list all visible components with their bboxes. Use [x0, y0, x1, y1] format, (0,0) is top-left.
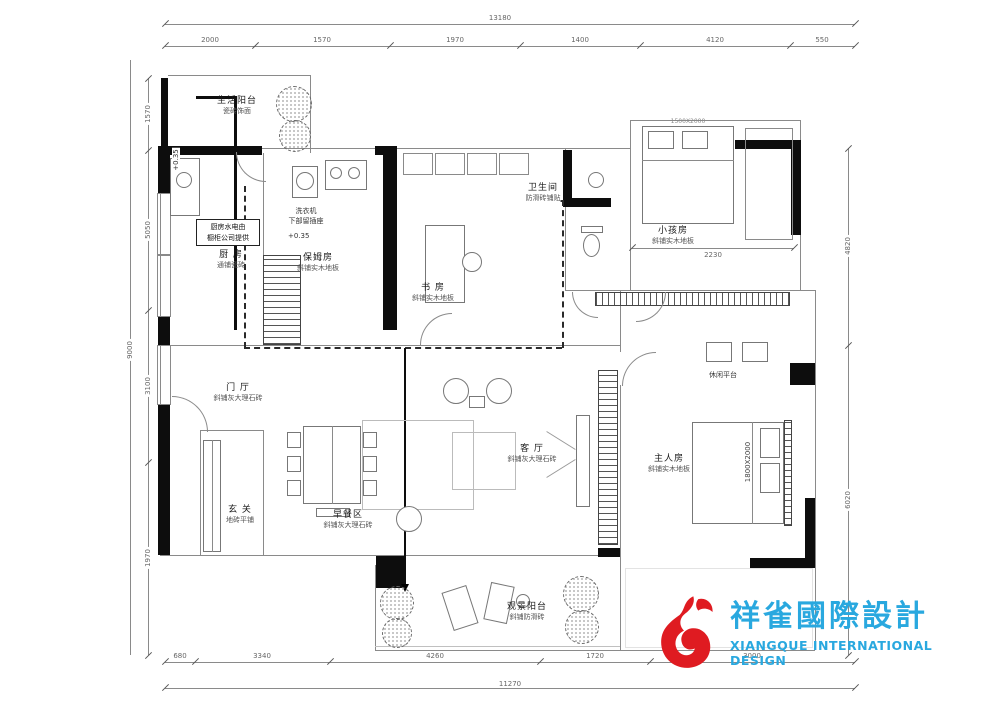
room-label-bath: 卫生间 防滑砖铺贴 — [526, 183, 561, 203]
room-finish: 斜铺实木地板 — [412, 294, 454, 302]
room-label-breakfast: 早餐区 斜铺灰大理石砖 — [324, 510, 373, 530]
partition-line — [160, 345, 620, 346]
tree — [276, 86, 312, 122]
sink-bowl — [176, 172, 192, 188]
chair — [363, 432, 377, 448]
chair — [363, 480, 377, 496]
master-bed-dim: 1800X2000 — [744, 440, 752, 484]
wall-solid — [598, 548, 620, 557]
note-line: 厨房水电由 — [200, 222, 256, 233]
tv-console — [576, 415, 590, 507]
chair — [287, 456, 301, 472]
room-name: 玄 关 — [226, 505, 254, 516]
dining-rug — [362, 420, 474, 510]
wall-line — [160, 555, 405, 556]
chair — [287, 432, 301, 448]
kitchen-note: 厨房水电由 橱柜公司提供 — [196, 219, 260, 246]
dim-top-5: 4120 — [704, 36, 726, 44]
room-label-living: 客 厅 斜铺灰大理石砖 — [508, 444, 557, 464]
kids-closet — [745, 128, 793, 240]
room-name: 书 房 — [412, 283, 454, 294]
room-finish: 斜铺灰大理石砖 — [324, 521, 373, 529]
round-table — [396, 506, 422, 532]
lounge-chair — [441, 585, 478, 631]
burner — [330, 167, 342, 179]
study-cabinet — [467, 153, 497, 175]
dresser — [706, 342, 732, 362]
dim-bottom-total: 11270 — [497, 680, 523, 688]
dresser — [742, 342, 768, 362]
kids-bed-dim: 1500X2000 — [669, 118, 708, 125]
basin — [588, 172, 604, 188]
tick — [791, 244, 798, 251]
study-cabinet — [435, 153, 465, 175]
room-finish: 地砖平铺 — [226, 516, 254, 524]
wall-line — [375, 650, 620, 651]
study-cabinet — [403, 153, 433, 175]
wardrobe-strip — [598, 370, 618, 545]
column-hatch — [157, 255, 171, 317]
room-label-maid: 保姆房 斜铺实木地板 — [297, 253, 339, 273]
toilet-tank — [581, 226, 603, 233]
wall-solid — [161, 78, 168, 150]
blanket-line — [642, 160, 734, 161]
dim-bottom-3: 4260 — [424, 652, 446, 660]
dim-left-4: 1970 — [144, 547, 152, 569]
dim-line-right — [848, 148, 849, 655]
railing-strip — [595, 292, 790, 306]
wall-solid — [383, 146, 397, 330]
wall-line — [620, 565, 621, 650]
dim-top-1: 2000 — [199, 36, 221, 44]
floor-plan-sheet: 13180 2000 1570 1970 1400 4120 550 9000 … — [0, 0, 1000, 716]
tree — [380, 586, 414, 620]
dim-line-bottom-total — [165, 688, 855, 689]
table-line — [332, 426, 333, 504]
wall-solid — [158, 155, 170, 193]
tick — [852, 20, 859, 27]
wall-solid — [563, 198, 611, 207]
tree — [563, 576, 599, 612]
dim-left-total: 9000 — [126, 339, 134, 361]
room-finish: 瓷砖饰面 — [217, 107, 257, 115]
partition-line — [200, 430, 201, 555]
level-marker: +0.35 — [288, 232, 309, 240]
wall-solid — [750, 558, 815, 568]
room-name: 卫生间 — [526, 183, 561, 194]
room-finish: 斜铺防滑砖 — [507, 613, 547, 621]
room-label-life-balcony: 生活阳台 瓷砖饰面 — [217, 96, 257, 116]
headboard — [784, 420, 792, 526]
wall-solid — [158, 405, 170, 555]
dim-top-3: 1970 — [444, 36, 466, 44]
room-label-kitchen: 厨 房 通铺瓷砖 — [217, 250, 245, 270]
wall-line — [630, 120, 800, 121]
wall-solid — [790, 363, 815, 385]
note-line: 洗衣机 — [289, 206, 324, 216]
room-label-hall: 门 厅 斜铺灰大理石砖 — [214, 383, 263, 403]
logo-chinese-text: 祥雀國際設計 — [730, 600, 928, 633]
armchair — [443, 378, 469, 404]
column-hatch — [157, 193, 171, 255]
logo-english-text: XIANGQUE INTERNATIONAL DESIGN — [730, 638, 938, 668]
room-name: 客 厅 — [508, 444, 557, 455]
door-arc — [622, 352, 656, 386]
wall-line — [405, 555, 620, 556]
dim-left-2: 5050 — [144, 219, 152, 241]
tree — [279, 120, 311, 152]
dim-line-top-total — [165, 24, 855, 25]
room-label-master: 主人房 斜铺实木地板 — [648, 454, 690, 474]
dim-bottom-2: 3340 — [251, 652, 273, 660]
room-name: 观景阳台 — [507, 602, 547, 613]
room-finish: 斜铺灰大理石砖 — [508, 455, 557, 463]
tick — [145, 652, 152, 659]
tree — [382, 618, 412, 648]
armchair — [486, 378, 512, 404]
chair — [287, 480, 301, 496]
wiring-dashed — [562, 200, 564, 348]
door-arc — [572, 292, 598, 318]
study-cabinet — [499, 153, 529, 175]
note-line: 下部留插座 — [289, 216, 324, 226]
wiring-dashed — [244, 347, 562, 349]
wall-line — [630, 120, 631, 148]
door-arc — [636, 292, 666, 322]
washer-note: 洗衣机 下部留插座 — [289, 206, 324, 226]
room-finish: 斜铺实木地板 — [652, 237, 694, 245]
cabinet-line — [212, 440, 213, 552]
dim-right-1: 4820 — [844, 235, 852, 257]
room-name: 保姆房 — [297, 253, 339, 264]
wall-line — [168, 75, 310, 76]
room-name: 门 厅 — [214, 383, 263, 394]
pillow — [760, 463, 780, 493]
room-name: 生活阳台 — [217, 96, 257, 107]
dim-left-1: 1570 — [144, 103, 152, 125]
dim-top-6: 550 — [813, 36, 830, 44]
room-name: 早餐区 — [324, 510, 373, 521]
pillow — [760, 428, 780, 458]
wall-line — [310, 75, 311, 153]
dim-bottom-1: 680 — [171, 652, 188, 660]
closet-dim-line — [632, 248, 794, 249]
toilet-bowl — [583, 234, 600, 257]
dim-line-top-seg — [165, 46, 855, 47]
level-marker-balcony: +0.35 — [172, 147, 180, 172]
tick — [852, 42, 859, 49]
room-finish: 斜铺实木地板 — [648, 465, 690, 473]
pillow — [682, 131, 708, 149]
window-line — [375, 646, 620, 647]
note-line: 橱柜公司提供 — [200, 233, 256, 244]
xiangque-bird-icon — [648, 592, 720, 672]
room-label-view-balcony: 观景阳台 斜铺防滑砖 — [507, 602, 547, 622]
partition-line — [620, 385, 621, 565]
pillow — [648, 131, 674, 149]
closet-dim: 2230 — [702, 251, 724, 259]
dim-left-3: 3100 — [144, 375, 152, 397]
room-finish: 斜铺灰大理石砖 — [214, 394, 263, 402]
door-arc — [172, 396, 208, 432]
tree — [565, 610, 599, 644]
supply-line — [234, 97, 237, 330]
logo: 祥雀國際設計 XIANGQUE INTERNATIONAL DESIGN — [648, 592, 938, 672]
room-finish: 防滑砖铺贴 — [526, 194, 561, 202]
partition-line — [200, 430, 263, 431]
tick — [852, 684, 859, 691]
burner — [348, 167, 360, 179]
dim-top-4: 1400 — [569, 36, 591, 44]
blanket-line — [752, 422, 753, 524]
chair — [363, 456, 377, 472]
side-table — [469, 396, 485, 408]
room-finish: 通铺瓷砖 — [217, 261, 245, 269]
washer-drum — [296, 172, 314, 190]
room-label-kids: 小孩房 斜铺实木地板 — [652, 226, 694, 246]
room-label-leisure: 休闲平台 — [709, 370, 737, 380]
door-arc — [420, 313, 452, 345]
dim-right-2: 6020 — [844, 489, 852, 511]
room-name: 小孩房 — [652, 226, 694, 237]
desk-chair — [462, 252, 482, 272]
room-name: 休闲平台 — [709, 370, 737, 380]
room-name: 厨 房 — [217, 250, 245, 261]
door-arc — [236, 152, 266, 182]
dim-top-total: 13180 — [487, 14, 513, 22]
partition-line — [263, 430, 264, 555]
counter-strip — [263, 255, 301, 345]
dim-top-2: 1570 — [311, 36, 333, 44]
dim-bottom-4: 1720 — [584, 652, 606, 660]
wall-solid — [158, 317, 170, 345]
room-finish: 斜铺实木地板 — [297, 264, 339, 272]
wall-line — [815, 290, 816, 565]
partition-line — [565, 290, 815, 291]
room-name: 主人房 — [648, 454, 690, 465]
room-label-foyer: 玄 关 地砖平铺 — [226, 505, 254, 525]
partition-line — [630, 148, 631, 290]
column-hatch — [157, 345, 171, 405]
room-label-study: 书 房 斜铺实木地板 — [412, 283, 454, 303]
